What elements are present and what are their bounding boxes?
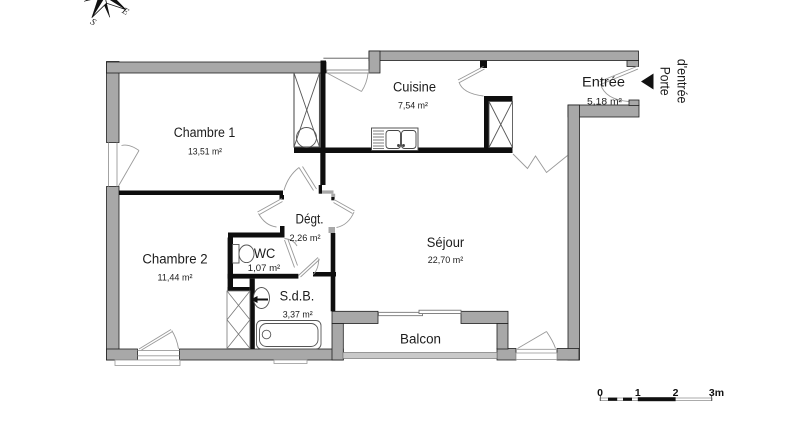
svg-text:7,54 m²: 7,54 m² [398, 101, 428, 112]
svg-text:13,51 m²: 13,51 m² [188, 147, 222, 158]
svg-text:Chambre 2: Chambre 2 [142, 252, 207, 267]
svg-text:0: 0 [597, 387, 603, 399]
svg-text:Balcon: Balcon [400, 332, 441, 347]
svg-text:2: 2 [673, 387, 679, 399]
svg-text:S.d.B.: S.d.B. [280, 289, 315, 304]
svg-text:11,44 m²: 11,44 m² [158, 273, 193, 284]
svg-text:1,07 m²: 1,07 m² [248, 263, 281, 274]
svg-text:Séjour: Séjour [427, 235, 465, 250]
svg-text:WC: WC [254, 246, 276, 261]
svg-text:Dégt.: Dégt. [296, 212, 324, 227]
svg-text:5,18 m²: 5,18 m² [587, 97, 622, 108]
svg-text:d'entrée: d'entrée [675, 59, 690, 104]
svg-text:Entrée: Entrée [582, 75, 625, 90]
svg-text:Chambre 1: Chambre 1 [174, 125, 236, 140]
svg-text:3m: 3m [709, 387, 724, 399]
svg-text:Cuisine: Cuisine [393, 80, 436, 95]
svg-text:3,37 m²: 3,37 m² [283, 309, 313, 320]
svg-text:2,26 m²: 2,26 m² [290, 233, 321, 244]
svg-text:22,70 m²: 22,70 m² [428, 255, 463, 266]
svg-text:Porte: Porte [658, 67, 673, 96]
svg-text:1: 1 [635, 387, 641, 399]
